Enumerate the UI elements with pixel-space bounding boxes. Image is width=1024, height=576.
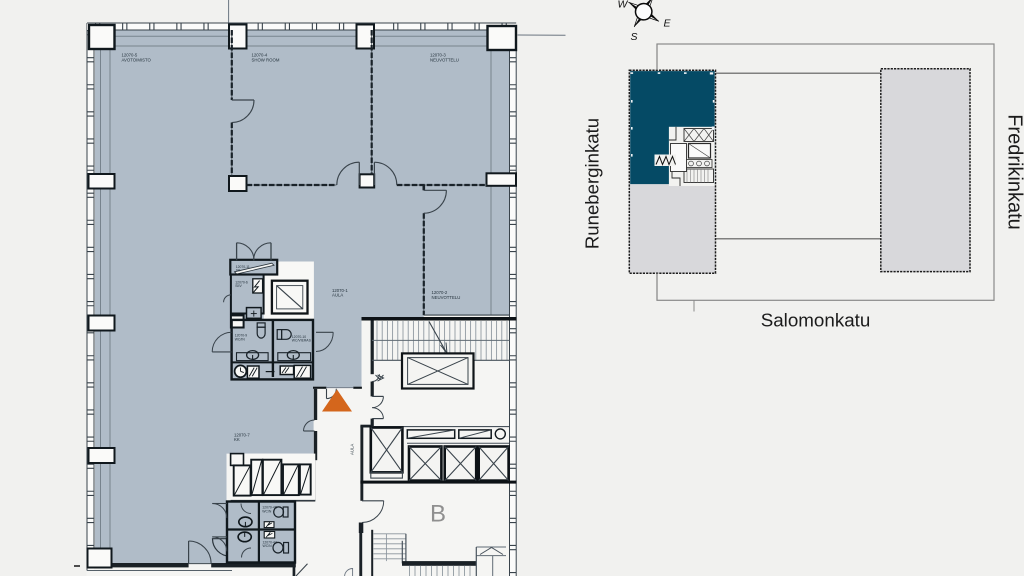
svg-text:WC/N: WC/N [262, 509, 272, 513]
svg-text:SHOW ROOM: SHOW ROOM [252, 57, 280, 62]
svg-text:AVOTOIMISTO: AVOTOIMISTO [122, 57, 152, 62]
svg-text:AULA: AULA [332, 293, 343, 298]
svg-text:E: E [664, 18, 672, 30]
svg-text:Runeberginkatu: Runeberginkatu [582, 118, 603, 249]
svg-text:W: W [618, 0, 629, 11]
svg-text:AULA: AULA [350, 444, 355, 455]
svg-text:Fredrikinkatu: Fredrikinkatu [1004, 114, 1024, 230]
svg-text:SIIV: SIIV [235, 284, 242, 288]
svg-text:WC/IN: WC/IN [235, 337, 246, 341]
svg-text:WC/VIERAS: WC/VIERAS [292, 339, 312, 343]
svg-text:KK: KK [234, 437, 240, 442]
svg-text:S: S [631, 31, 638, 43]
svg-text:WC/N: WC/N [263, 544, 273, 548]
svg-text:SK: SK [236, 269, 241, 273]
svg-text:Salomonkatu: Salomonkatu [761, 310, 871, 331]
svg-text:NEUVOTTELU: NEUVOTTELU [430, 57, 459, 62]
svg-text:NEUVOTTELU: NEUVOTTELU [432, 295, 461, 300]
svg-text:B: B [430, 501, 446, 528]
